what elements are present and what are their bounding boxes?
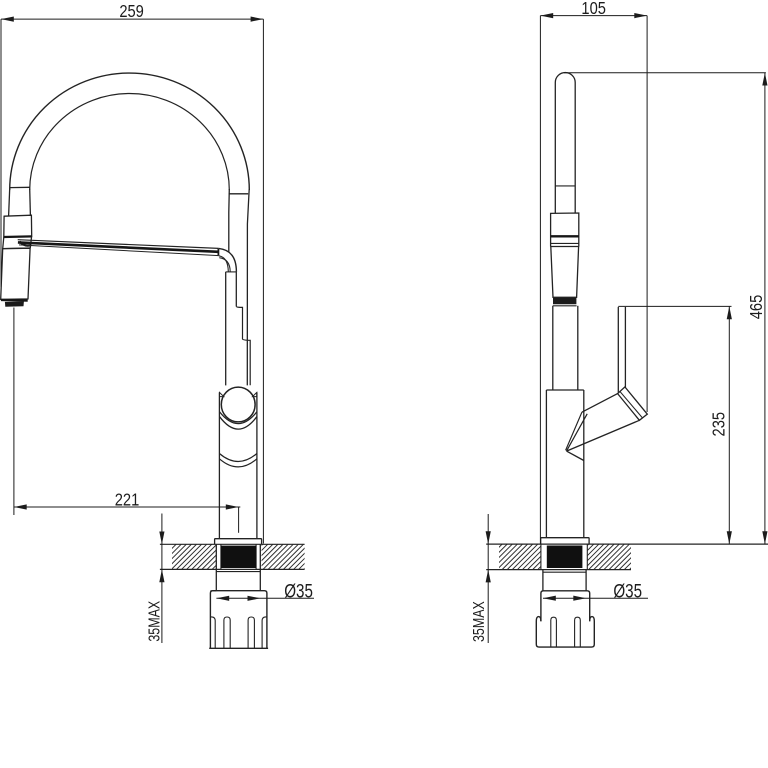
svg-text:35MAX: 35MAX bbox=[146, 600, 164, 641]
svg-text:35MAX: 35MAX bbox=[471, 601, 489, 642]
svg-text:465: 465 bbox=[747, 295, 766, 320]
svg-text:Ø35: Ø35 bbox=[284, 580, 313, 602]
svg-text:105: 105 bbox=[581, 0, 606, 18]
svg-text:259: 259 bbox=[119, 2, 144, 21]
svg-text:Ø35: Ø35 bbox=[613, 580, 642, 602]
svg-text:235: 235 bbox=[709, 412, 728, 437]
svg-text:221: 221 bbox=[115, 490, 140, 509]
